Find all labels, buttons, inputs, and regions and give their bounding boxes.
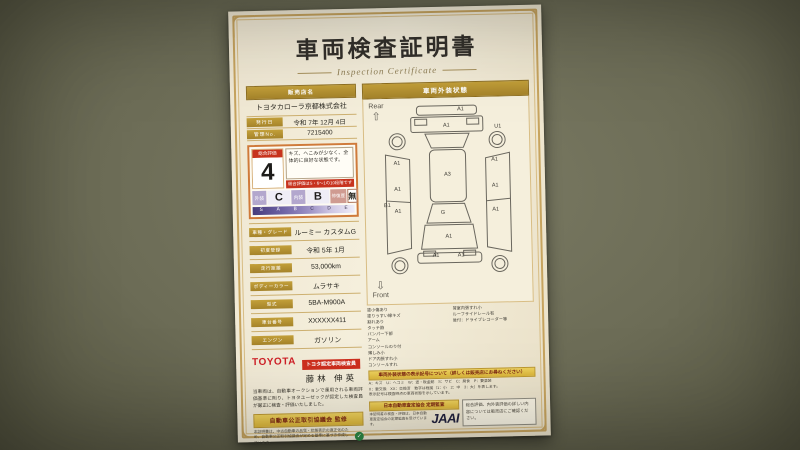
jaai-logo: JAAI <box>431 411 459 427</box>
condition-notes: 塗小傷あり塗りうすい線キズ割れありタッチ跡バンパー下部アームコンソールのり付薄し… <box>367 304 535 369</box>
condition-notes-left: 塗小傷あり塗りうすい線キズ割れありタッチ跡バンパー下部アームコンソールのり付薄し… <box>367 306 450 369</box>
front-label: Front <box>373 292 389 299</box>
interior-grade-label: 内装 <box>291 190 305 204</box>
toyota-logo: TOYOTA <box>252 356 296 368</box>
evaluation-comment-cell: キズ、へこみが少なく、全体的に良好な状態です。 総合評価はS・6〜1の10段階で… <box>285 147 354 189</box>
condition-note: 後付：ドライブレコーダー等 <box>453 316 535 324</box>
panel-mark: A1 <box>492 206 499 212</box>
condition-note: コンソールすれ <box>368 361 450 369</box>
grade-scale-letter: S <box>253 207 270 215</box>
certification-mark-icon: ✓ <box>355 431 364 440</box>
panel-mark: B1 <box>384 203 391 209</box>
certified-inspector-badge: トヨタ認定車両検査員 <box>302 358 360 369</box>
assessor-left: 日本自動車査定協会 定期監査 本証明書の検査・評価は、日本自動車査定協会の定期監… <box>369 399 459 428</box>
evaluation-scale-banner: 総合評価はS・6〜1の10段階です <box>286 179 354 189</box>
certificate-subtitle: Inspection Certificate <box>337 65 437 77</box>
panel-mark: A1 <box>433 253 440 259</box>
car-outline-wrapper: A1A1U1A1A1A3A1B1A1A1A1GA1A1A1 <box>380 100 516 301</box>
fair-trade-band: 自動車公正取引協議会 監修 <box>253 411 363 427</box>
certificate-title: 車両検査証明書 <box>245 26 529 66</box>
down-arrow-icon: ⇩ <box>372 280 389 292</box>
mileage-value: 53,000km <box>292 263 360 272</box>
assessor-note: 本証明書の検査・評価は、日本自動車査定協会の定期監査を受けています。 <box>369 411 429 428</box>
diagram-marks: A1A1U1A1A1A3A1B1A1A1A1GA1A1A1 <box>380 100 516 301</box>
grade-scale-letter: B <box>287 206 304 214</box>
grade-scale-letter: D <box>321 205 338 213</box>
chassis-no-label: 車台番号 <box>251 317 293 327</box>
symbol-legend-lines: A：キズ U：ヘコミ W：波・板金跡 S：サビ C：腐食 P：要塗装X：要交換 … <box>369 378 536 399</box>
grade-scale-letter: E <box>338 205 355 213</box>
evaluation-box: 総合評価 4 キズ、へこみが少なく、全体的に良好な状態です。 総合評価はS・6〜… <box>247 143 359 219</box>
vehicle-info-column: 販売店名 トヨタカローラ京都株式会社 発行日 令和 7年 12月 4日 管理No… <box>246 84 364 447</box>
engine-value: ガソリン <box>293 333 361 345</box>
panel-mark: A1 <box>394 161 401 167</box>
panel-mark: A1 <box>491 157 498 163</box>
inspection-statement: 当車両は、自動車オークションで運用される車両評価基準に則り、トヨタユーゼックが認… <box>253 387 363 410</box>
overall-score-cell: 総合評価 4 <box>251 148 284 189</box>
evaluation-top-row: 総合評価 4 キズ、へこみが少なく、全体的に良好な状態です。 総合評価はS・6〜… <box>251 147 354 189</box>
panel-mark: A1 <box>443 122 450 128</box>
grade-scale-letter: C <box>304 206 321 214</box>
assessor-bottom-row: 本証明書の検査・評価は、日本自動車査定協会の定期監査を受けています。 JAAI <box>369 410 459 428</box>
first-registration-value: 令和 5年 1月 <box>291 243 359 255</box>
panel-mark: U1 <box>494 123 501 129</box>
inspector-block: TOYOTA トヨタ認定車両検査員 藤林 伸英 <box>252 352 363 386</box>
panel-mark: A1 <box>445 233 452 239</box>
panel-mark: A3 <box>444 172 451 178</box>
grade-scale-letter: A <box>270 206 287 214</box>
body-color-value: ムラサキ <box>292 279 360 291</box>
first-registration-label: 初度登録 <box>249 245 291 255</box>
chassis-no-value: XXXXXX411 <box>293 317 361 326</box>
control-no-label: 管理No. <box>247 129 283 139</box>
detail-row: エンジン ガソリン <box>251 330 361 350</box>
exterior-diagram: Rear ⇧ <box>362 96 534 306</box>
repair-history-value: 無 <box>347 189 357 203</box>
panel-mark: A1 <box>394 187 401 193</box>
panel-mark: A1 <box>492 183 499 189</box>
inspector-identity: トヨタ認定車両検査員 藤林 伸英 <box>300 352 363 385</box>
condition-notes-right: 荷室内張すれ小ルーフサイドレール有後付：ドライブレコーダー等 <box>452 304 535 367</box>
model-code-value: 5BA-M900A <box>293 299 361 308</box>
model-code-label: 型式 <box>251 299 293 309</box>
repair-history-label: 修復歴 <box>330 189 346 203</box>
exterior-condition-column: 車両外装状態 Rear ⇧ <box>362 80 537 444</box>
assessor-footer: 日本自動車査定協会 定期監査 本証明書の検査・評価は、日本自動車査定協会の定期監… <box>369 398 537 428</box>
evaluation-comment: キズ、へこみが少なく、全体的に良好な状態です。 <box>285 147 354 180</box>
exterior-grade-label: 外装 <box>252 191 266 205</box>
panel-mark: G <box>441 210 445 216</box>
front-direction-label: ⇩ Front <box>372 280 389 300</box>
panel-mark: A1 <box>458 253 465 259</box>
engine-label: エンジン <box>252 335 294 345</box>
overall-score-value: 4 <box>252 157 283 188</box>
model-grade-label: 車種・グレード <box>249 227 291 237</box>
panel-mark: A1 <box>395 209 402 215</box>
grade-row: 外装 C 内装 B 修復歴 無 <box>252 189 354 205</box>
issue-date-label: 発行日 <box>247 117 283 127</box>
vehicle-detail-table: 車種・グレード ルーミー カスタムG 初度登録 令和 5年 1月 走行距離 53… <box>249 221 362 350</box>
dealer-inquiry-box: 総合評価、内外装評価の詳しい内容については販売店にご確認ください。 <box>462 398 537 426</box>
model-grade-value: ルーミー カスタムG <box>291 225 359 237</box>
subtitle-rule-left <box>298 72 332 74</box>
control-no-value: 7215400 <box>283 129 357 138</box>
body-color-label: ボディーカラー <box>250 281 292 291</box>
certificate-columns: 販売店名 トヨタカローラ京都株式会社 発行日 令和 7年 12月 4日 管理No… <box>246 80 537 447</box>
interior-grade-value: B <box>306 189 329 204</box>
certificate-paper: 車両検査証明書 Inspection Certificate 販売店名 トヨタカ… <box>228 5 551 443</box>
panel-mark: A1 <box>457 106 464 112</box>
exterior-grade-value: C <box>267 190 290 205</box>
fair-trade-note-row: 本証明書は、中古自動車の品質・状態表示の適正化のため、自動車公正取引協議会が定め… <box>254 427 364 447</box>
fair-trade-note: 本証明書は、中古自動車の品質・状態表示の適正化のため、自動車公正取引協議会が定め… <box>254 428 352 447</box>
certificate-subtitle-row: Inspection Certificate <box>245 63 528 79</box>
grade-scale-bar: SABCDE <box>253 205 355 215</box>
subtitle-rule-right <box>442 68 476 70</box>
inspector-name: 藤林 伸英 <box>300 372 363 385</box>
mileage-label: 走行距離 <box>250 263 292 273</box>
photo-background: { "certificate": { "title": "車両検査証明書", "… <box>0 0 800 450</box>
certificate-content: 車両検査証明書 Inspection Certificate 販売店名 トヨタカ… <box>244 18 536 429</box>
issue-date-value: 令和 7年 12月 4日 <box>283 115 357 127</box>
control-no-row: 管理No. 7215400 <box>247 127 357 141</box>
assessor-band: 日本自動車査定協会 定期監査 <box>369 399 459 411</box>
